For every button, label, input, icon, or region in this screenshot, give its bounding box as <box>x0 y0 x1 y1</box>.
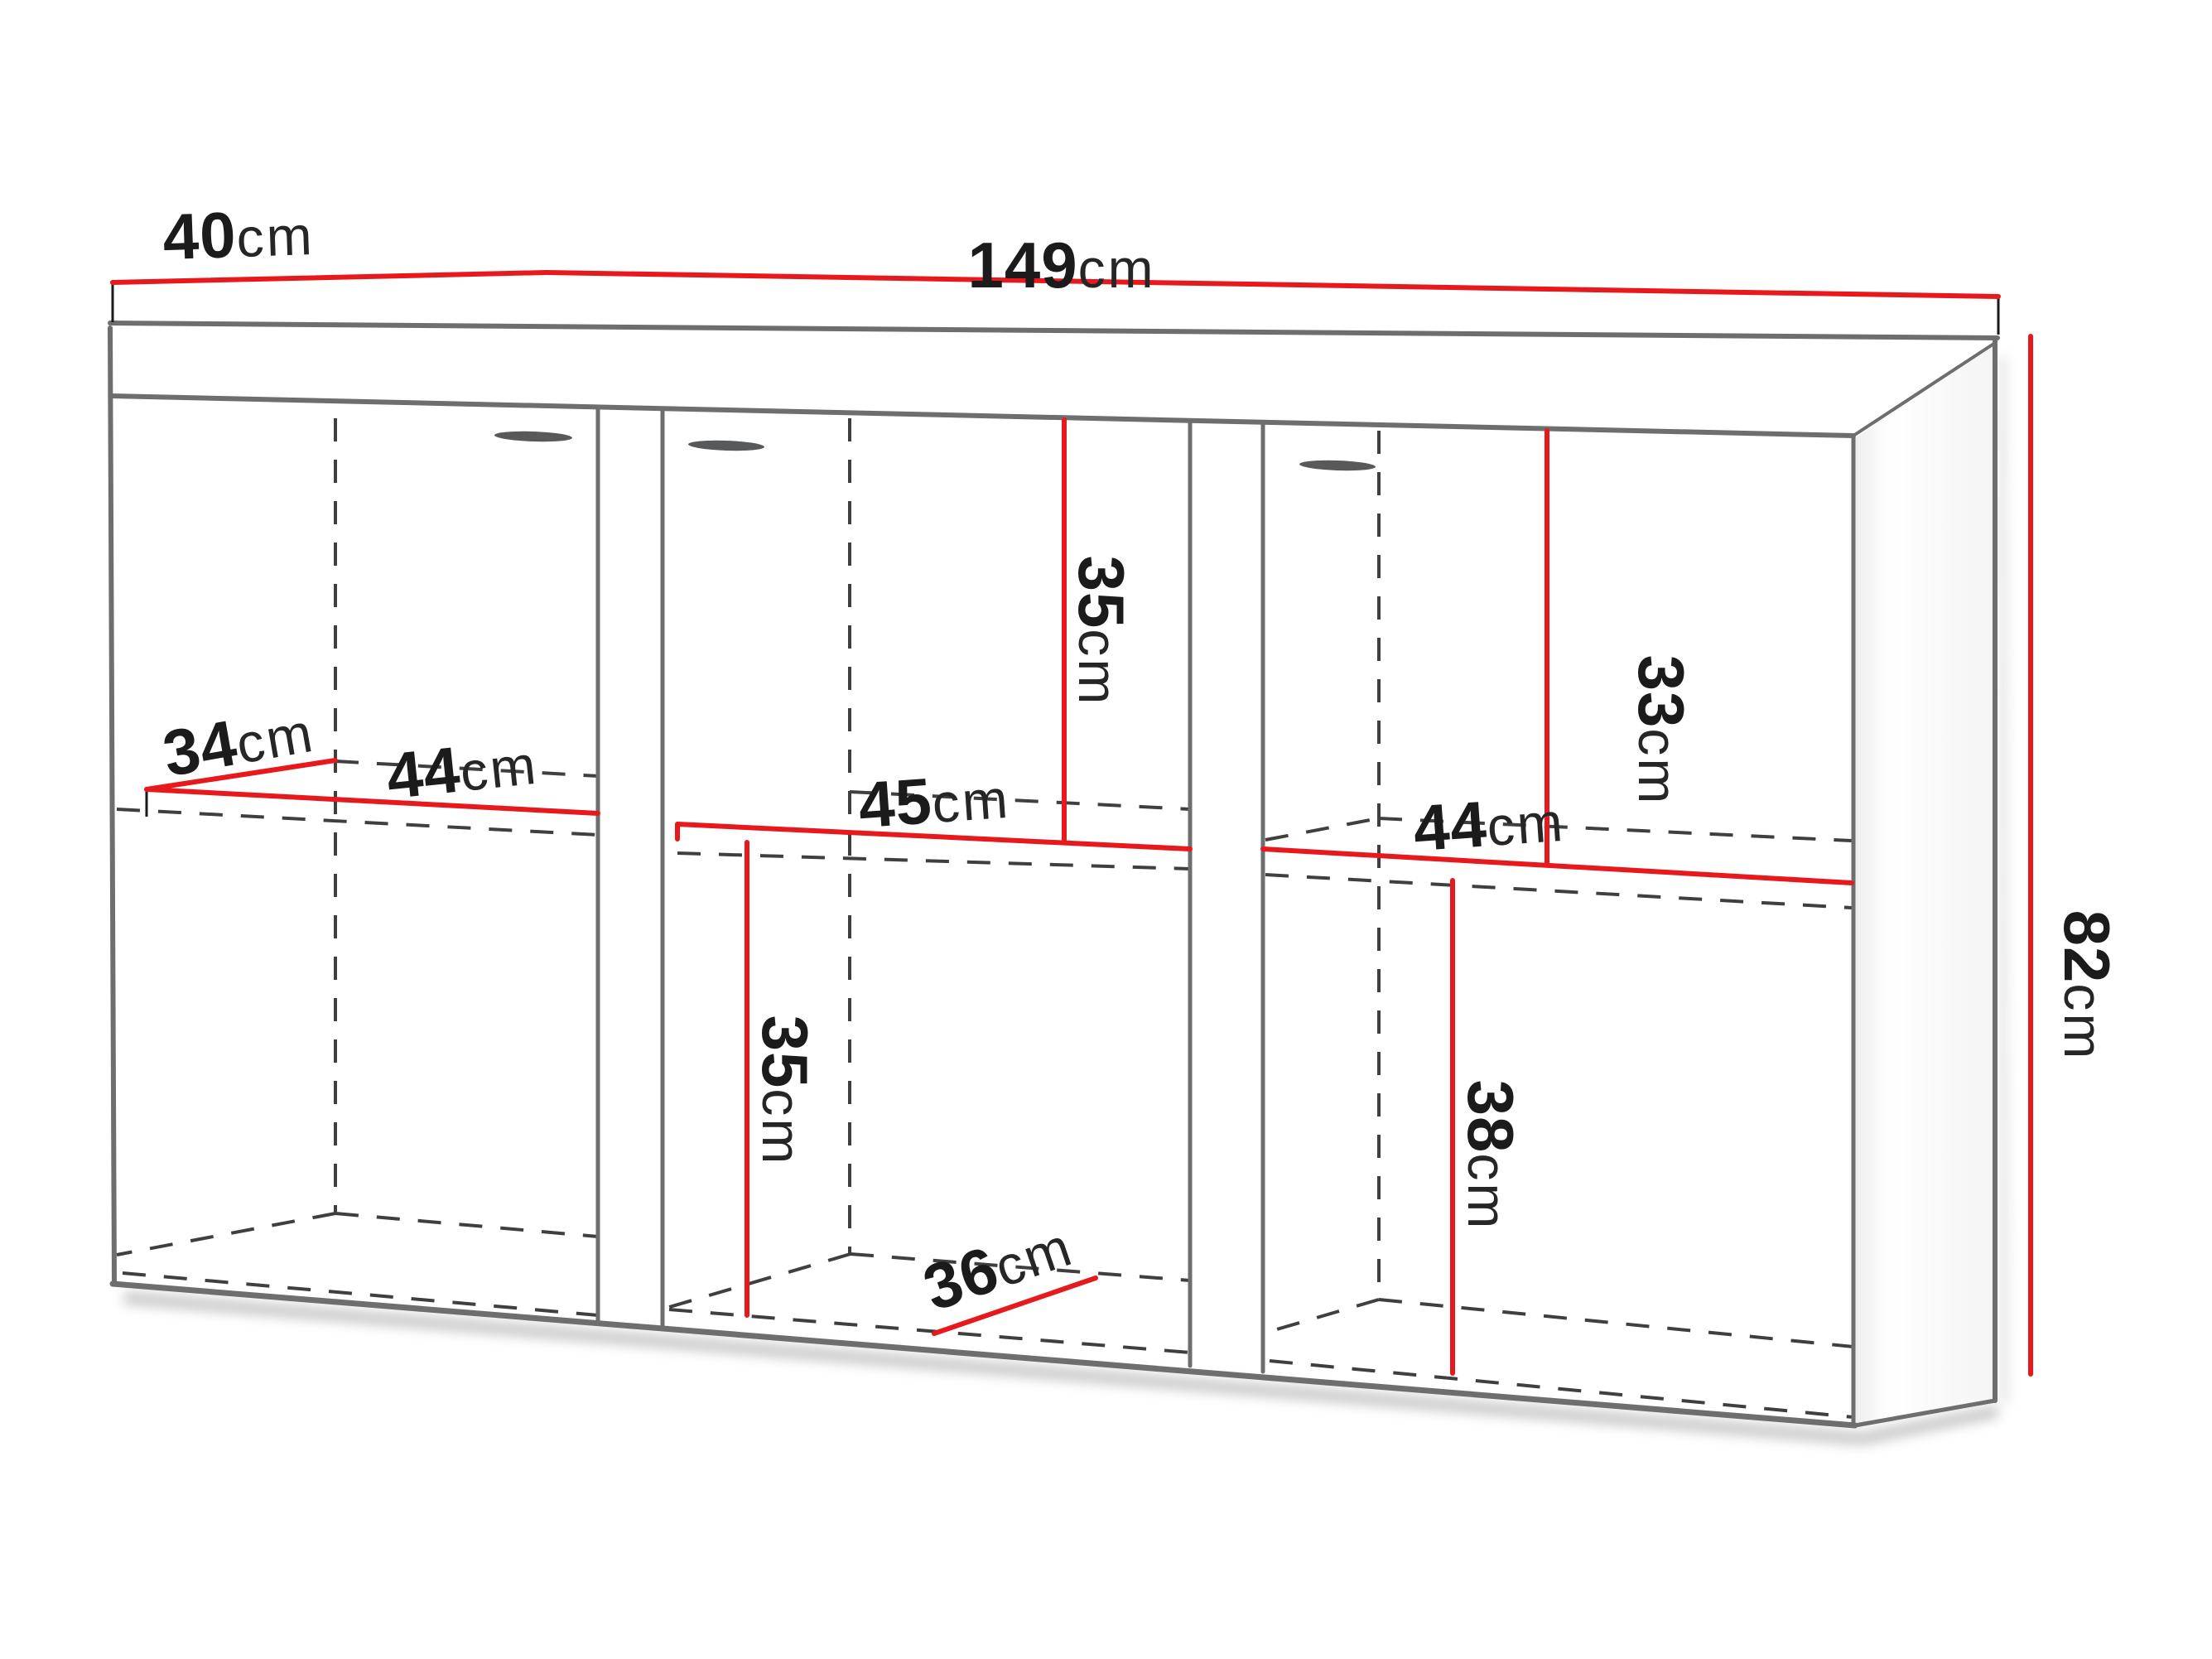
dim-unit: cm <box>1078 238 1156 299</box>
dim-unit: cm <box>2053 983 2114 1061</box>
dim-value: 45 <box>856 764 935 842</box>
door-handles <box>494 430 1376 471</box>
dim-label-left-shelf-width: 44cm <box>383 729 541 809</box>
dim-unit: cm <box>235 205 316 268</box>
dim-unit: cm <box>930 768 1012 834</box>
dim-value: 38 <box>1454 1080 1527 1154</box>
dim-label-right-shelf-width: 44cm <box>1411 786 1567 861</box>
dim-unit: cm <box>1485 791 1567 857</box>
dim-value: 82 <box>2051 910 2123 984</box>
dim-value: 149 <box>967 229 1077 301</box>
dim-label-middle-shelf-width: 45cm <box>856 763 1012 838</box>
dim-line-40 <box>113 272 547 282</box>
dim-value: 33 <box>1625 655 1698 729</box>
dim-line-44-right <box>1263 849 1852 883</box>
dim-value: 44 <box>1411 787 1490 865</box>
dim-unit: cm <box>1067 629 1129 707</box>
dim-label-middle-lower-height: 35cm <box>753 1015 817 1167</box>
handle-right-door-icon <box>1299 459 1376 471</box>
handle-middle-door-icon <box>688 439 764 451</box>
dim-value: 35 <box>1065 556 1138 629</box>
dim-label-right-upper-height: 33cm <box>1629 655 1694 807</box>
dimension-ticks <box>113 282 1998 817</box>
dim-value: 40 <box>161 198 238 273</box>
dimension-diagram: 40cm 149cm 82cm 34cm 44cm 35cm 45cm 33cm… <box>0 0 2212 1659</box>
dim-label-top-depth: 40cm <box>161 200 315 269</box>
dim-unit: cm <box>457 734 541 803</box>
dim-label-right-lower-height: 38cm <box>1458 1080 1523 1232</box>
dim-value: 34 <box>157 706 243 790</box>
dim-value: 44 <box>383 733 464 813</box>
dim-unit: cm <box>1627 728 1689 806</box>
dim-value: 35 <box>749 1015 822 1089</box>
dim-unit: cm <box>1457 1153 1518 1231</box>
dim-label-top-width: 149cm <box>967 233 1155 297</box>
dim-label-middle-upper-height: 35cm <box>1069 556 1134 707</box>
handle-left-door-icon <box>494 430 572 442</box>
dim-line-149 <box>547 272 1998 297</box>
dim-unit: cm <box>751 1088 812 1166</box>
right-side-panel <box>1853 345 1995 1424</box>
dim-label-right-height: 82cm <box>2055 910 2119 1062</box>
dimension-lines <box>113 272 2031 1374</box>
